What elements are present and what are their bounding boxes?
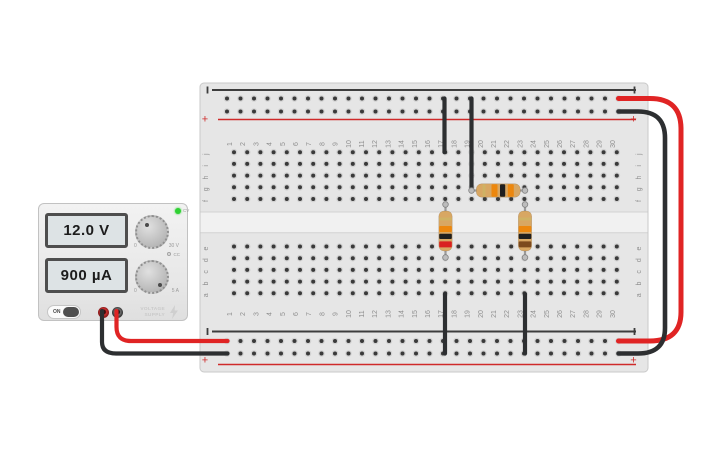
breadboard-hole[interactable] [252, 352, 256, 356]
breadboard-hole[interactable] [549, 185, 553, 189]
breadboard-hole[interactable] [364, 185, 368, 189]
breadboard-hole[interactable] [562, 150, 566, 154]
breadboard-hole[interactable] [417, 197, 421, 201]
breadboard-hole[interactable] [351, 245, 355, 249]
breadboard-hole[interactable] [496, 256, 500, 260]
breadboard-hole[interactable] [456, 245, 460, 249]
breadboard-hole[interactable] [495, 352, 499, 356]
breadboard-hole[interactable] [324, 256, 328, 260]
breadboard-hole[interactable] [404, 174, 408, 178]
breadboard-hole[interactable] [590, 110, 594, 114]
breadboard-hole[interactable] [495, 97, 499, 101]
breadboard-hole[interactable] [509, 256, 513, 260]
breadboard-hole[interactable] [470, 197, 474, 201]
breadboard-hole[interactable] [333, 352, 337, 356]
breadboard-hole[interactable] [245, 185, 249, 189]
breadboard-hole[interactable] [549, 162, 553, 166]
breadboard-hole[interactable] [311, 256, 315, 260]
breadboard-hole[interactable] [536, 197, 540, 201]
breadboard-hole[interactable] [430, 150, 434, 154]
breadboard-hole[interactable] [428, 352, 432, 356]
breadboard-hole[interactable] [298, 256, 302, 260]
breadboard-hole[interactable] [377, 150, 381, 154]
breadboard-hole[interactable] [509, 352, 513, 356]
breadboard-hole[interactable] [603, 339, 607, 343]
breadboard-hole[interactable] [387, 352, 391, 356]
breadboard-hole[interactable] [324, 185, 328, 189]
breadboard-hole[interactable] [549, 352, 553, 356]
breadboard-hole[interactable] [428, 110, 432, 114]
breadboard-hole[interactable] [536, 339, 540, 343]
breadboard-hole[interactable] [470, 245, 474, 249]
breadboard-hole[interactable] [293, 97, 297, 101]
breadboard-hole[interactable] [245, 197, 249, 201]
breadboard-hole[interactable] [401, 97, 405, 101]
breadboard-hole[interactable] [430, 185, 434, 189]
breadboard-hole[interactable] [603, 110, 607, 114]
breadboard-hole[interactable] [232, 174, 236, 178]
breadboard-hole[interactable] [468, 339, 472, 343]
breadboard-hole[interactable] [360, 339, 364, 343]
breadboard-hole[interactable] [602, 291, 606, 295]
breadboard-hole[interactable] [245, 256, 249, 260]
breadboard-hole[interactable] [351, 185, 355, 189]
breadboard-hole[interactable] [602, 256, 606, 260]
breadboard-hole[interactable] [232, 291, 236, 295]
breadboard-hole[interactable] [549, 150, 553, 154]
breadboard-hole[interactable] [430, 280, 434, 284]
breadboard-hole[interactable] [285, 245, 289, 249]
breadboard-hole[interactable] [404, 291, 408, 295]
breadboard-hole[interactable] [575, 174, 579, 178]
breadboard-hole[interactable] [456, 291, 460, 295]
breadboard-hole[interactable] [536, 291, 540, 295]
breadboard-hole[interactable] [279, 110, 283, 114]
breadboard-hole[interactable] [320, 352, 324, 356]
breadboard-hole[interactable] [258, 162, 262, 166]
breadboard-hole[interactable] [430, 197, 434, 201]
breadboard-hole[interactable] [272, 268, 276, 272]
breadboard-hole[interactable] [549, 97, 553, 101]
breadboard-hole[interactable] [272, 197, 276, 201]
breadboard-hole[interactable] [414, 339, 418, 343]
breadboard-hole[interactable] [549, 256, 553, 260]
breadboard-hole[interactable] [563, 352, 567, 356]
breadboard-hole[interactable] [258, 280, 262, 284]
breadboard-hole[interactable] [509, 339, 513, 343]
breadboard-hole[interactable] [404, 185, 408, 189]
breadboard-hole[interactable] [306, 352, 310, 356]
breadboard-hole[interactable] [509, 162, 513, 166]
breadboard-hole[interactable] [298, 162, 302, 166]
breadboard-hole[interactable] [347, 339, 351, 343]
breadboard-hole[interactable] [390, 197, 394, 201]
breadboard-hole[interactable] [430, 162, 434, 166]
breadboard-hole[interactable] [239, 110, 243, 114]
breadboard-hole[interactable] [536, 268, 540, 272]
breadboard-hole[interactable] [320, 97, 324, 101]
breadboard-hole[interactable] [482, 352, 486, 356]
breadboard-hole[interactable] [562, 245, 566, 249]
breadboard-hole[interactable] [232, 162, 236, 166]
breadboard-hole[interactable] [338, 268, 342, 272]
breadboard-hole[interactable] [470, 280, 474, 284]
breadboard-hole[interactable] [562, 197, 566, 201]
breadboard-hole[interactable] [258, 185, 262, 189]
breadboard-hole[interactable] [536, 245, 540, 249]
breadboard-hole[interactable] [360, 352, 364, 356]
breadboard-hole[interactable] [496, 162, 500, 166]
breadboard-hole[interactable] [258, 245, 262, 249]
breadboard-hole[interactable] [483, 162, 487, 166]
breadboard-hole[interactable] [338, 280, 342, 284]
breadboard-hole[interactable] [496, 150, 500, 154]
breadboard-hole[interactable] [588, 150, 592, 154]
breadboard-hole[interactable] [536, 110, 540, 114]
breadboard-hole[interactable] [455, 352, 459, 356]
breadboard-hole[interactable] [443, 280, 447, 284]
breadboard-hole[interactable] [509, 268, 513, 272]
breadboard-hole[interactable] [377, 268, 381, 272]
breadboard-hole[interactable] [588, 291, 592, 295]
breadboard-hole[interactable] [575, 291, 579, 295]
breadboard-hole[interactable] [404, 268, 408, 272]
breadboard-hole[interactable] [258, 291, 262, 295]
breadboard-hole[interactable] [232, 150, 236, 154]
breadboard-hole[interactable] [456, 150, 460, 154]
breadboard-hole[interactable] [602, 280, 606, 284]
breadboard-hole[interactable] [588, 268, 592, 272]
breadboard-hole[interactable] [298, 280, 302, 284]
breadboard-hole[interactable] [562, 174, 566, 178]
breadboard-hole[interactable] [311, 197, 315, 201]
breadboard-hole[interactable] [377, 245, 381, 249]
breadboard-hole[interactable] [615, 245, 619, 249]
breadboard-hole[interactable] [324, 245, 328, 249]
breadboard-hole[interactable] [495, 339, 499, 343]
breadboard-hole[interactable] [258, 150, 262, 154]
breadboard-hole[interactable] [404, 162, 408, 166]
breadboard-hole[interactable] [377, 162, 381, 166]
breadboard-hole[interactable] [245, 291, 249, 295]
breadboard-hole[interactable] [483, 245, 487, 249]
breadboard-hole[interactable] [338, 245, 342, 249]
breadboard-hole[interactable] [338, 256, 342, 260]
breadboard-hole[interactable] [324, 150, 328, 154]
breadboard-hole[interactable] [324, 174, 328, 178]
breadboard-hole[interactable] [602, 197, 606, 201]
breadboard-hole[interactable] [333, 97, 337, 101]
breadboard-hole[interactable] [377, 174, 381, 178]
breadboard-hole[interactable] [245, 245, 249, 249]
breadboard-hole[interactable] [430, 268, 434, 272]
breadboard-hole[interactable] [509, 291, 513, 295]
breadboard-hole[interactable] [456, 268, 460, 272]
breadboard-hole[interactable] [311, 280, 315, 284]
breadboard-hole[interactable] [338, 185, 342, 189]
breadboard-hole[interactable] [364, 268, 368, 272]
breadboard-hole[interactable] [333, 339, 337, 343]
breadboard-hole[interactable] [351, 162, 355, 166]
breadboard-hole[interactable] [351, 256, 355, 260]
breadboard-hole[interactable] [252, 97, 256, 101]
breadboard-hole[interactable] [293, 339, 297, 343]
breadboard-hole[interactable] [456, 256, 460, 260]
breadboard-hole[interactable] [258, 197, 262, 201]
breadboard-hole[interactable] [252, 110, 256, 114]
breadboard-hole[interactable] [588, 245, 592, 249]
breadboard-hole[interactable] [575, 185, 579, 189]
breadboard-hole[interactable] [390, 280, 394, 284]
breadboard-hole[interactable] [483, 291, 487, 295]
breadboard-hole[interactable] [377, 280, 381, 284]
breadboard-hole[interactable] [311, 162, 315, 166]
breadboard-hole[interactable] [602, 268, 606, 272]
breadboard-hole[interactable] [360, 110, 364, 114]
breadboard-hole[interactable] [245, 174, 249, 178]
breadboard-hole[interactable] [390, 174, 394, 178]
breadboard-hole[interactable] [602, 162, 606, 166]
breadboard-hole[interactable] [549, 339, 553, 343]
breadboard-hole[interactable] [232, 256, 236, 260]
breadboard-hole[interactable] [522, 110, 526, 114]
breadboard-hole[interactable] [239, 339, 243, 343]
breadboard-hole[interactable] [496, 174, 500, 178]
breadboard-hole[interactable] [482, 110, 486, 114]
breadboard-hole[interactable] [549, 268, 553, 272]
breadboard-hole[interactable] [239, 97, 243, 101]
breadboard-hole[interactable] [258, 174, 262, 178]
breadboard-hole[interactable] [351, 197, 355, 201]
breadboard-hole[interactable] [279, 352, 283, 356]
breadboard-hole[interactable] [602, 150, 606, 154]
breadboard-hole[interactable] [298, 245, 302, 249]
breadboard-hole[interactable] [575, 245, 579, 249]
breadboard-hole[interactable] [404, 256, 408, 260]
breadboard-hole[interactable] [404, 245, 408, 249]
breadboard-hole[interactable] [298, 185, 302, 189]
breadboard-hole[interactable] [576, 110, 580, 114]
breadboard-hole[interactable] [536, 280, 540, 284]
breadboard-hole[interactable] [588, 280, 592, 284]
breadboard-hole[interactable] [482, 97, 486, 101]
breadboard-hole[interactable] [245, 150, 249, 154]
breadboard-hole[interactable] [285, 150, 289, 154]
breadboard-hole[interactable] [536, 174, 540, 178]
breadboard-hole[interactable] [324, 291, 328, 295]
breadboard-hole[interactable] [324, 197, 328, 201]
breadboard-hole[interactable] [417, 245, 421, 249]
breadboard-hole[interactable] [536, 256, 540, 260]
breadboard-hole[interactable] [285, 197, 289, 201]
breadboard-hole[interactable] [347, 110, 351, 114]
breadboard-hole[interactable] [522, 280, 526, 284]
breadboard-hole[interactable] [549, 280, 553, 284]
breadboard-hole[interactable] [509, 245, 513, 249]
breadboard-hole[interactable] [615, 185, 619, 189]
breadboard-hole[interactable] [252, 339, 256, 343]
breadboard-hole[interactable] [351, 268, 355, 272]
breadboard-hole[interactable] [443, 185, 447, 189]
breadboard-hole[interactable] [468, 352, 472, 356]
breadboard-hole[interactable] [588, 162, 592, 166]
breadboard-hole[interactable] [364, 197, 368, 201]
breadboard-hole[interactable] [615, 162, 619, 166]
resistor-left-vertical-pin[interactable] [443, 255, 449, 261]
breadboard-hole[interactable] [272, 150, 276, 154]
breadboard-hole[interactable] [470, 268, 474, 272]
breadboard-hole[interactable] [496, 197, 500, 201]
breadboard-hole[interactable] [272, 185, 276, 189]
breadboard-hole[interactable] [285, 291, 289, 295]
breadboard-hole[interactable] [390, 256, 394, 260]
breadboard-hole[interactable] [443, 162, 447, 166]
breadboard-hole[interactable] [377, 291, 381, 295]
breadboard-hole[interactable] [575, 280, 579, 284]
breadboard-hole[interactable] [455, 97, 459, 101]
breadboard-hole[interactable] [404, 150, 408, 154]
breadboard-hole[interactable] [470, 256, 474, 260]
breadboard-hole[interactable] [298, 291, 302, 295]
breadboard-hole[interactable] [324, 162, 328, 166]
breadboard-hole[interactable] [430, 291, 434, 295]
breadboard-hole[interactable] [562, 291, 566, 295]
breadboard-hole[interactable] [590, 352, 594, 356]
breadboard-hole[interactable] [338, 291, 342, 295]
breadboard-hole[interactable] [615, 291, 619, 295]
breadboard-hole[interactable] [306, 110, 310, 114]
breadboard-hole[interactable] [562, 162, 566, 166]
breadboard-hole[interactable] [338, 197, 342, 201]
breadboard-hole[interactable] [417, 291, 421, 295]
breadboard-hole[interactable] [298, 150, 302, 154]
breadboard-hole[interactable] [522, 162, 526, 166]
breadboard-hole[interactable] [417, 268, 421, 272]
breadboard-hole[interactable] [522, 150, 526, 154]
breadboard-hole[interactable] [562, 268, 566, 272]
breadboard-hole[interactable] [588, 197, 592, 201]
breadboard-hole[interactable] [430, 256, 434, 260]
breadboard-hole[interactable] [562, 185, 566, 189]
breadboard-hole[interactable] [390, 268, 394, 272]
breadboard-hole[interactable] [306, 97, 310, 101]
breadboard-hole[interactable] [324, 268, 328, 272]
breadboard-hole[interactable] [374, 339, 378, 343]
breadboard-hole[interactable] [417, 150, 421, 154]
breadboard-hole[interactable] [483, 280, 487, 284]
breadboard-hole[interactable] [443, 197, 447, 201]
breadboard-hole[interactable] [390, 185, 394, 189]
breadboard-hole[interactable] [374, 352, 378, 356]
breadboard-hole[interactable] [443, 268, 447, 272]
breadboard-hole[interactable] [522, 268, 526, 272]
breadboard-hole[interactable] [496, 291, 500, 295]
breadboard-hole[interactable] [232, 185, 236, 189]
breadboard-hole[interactable] [266, 352, 270, 356]
breadboard-hole[interactable] [615, 280, 619, 284]
breadboard-hole[interactable] [563, 110, 567, 114]
breadboard-hole[interactable] [390, 162, 394, 166]
breadboard-hole[interactable] [417, 256, 421, 260]
breadboard-hole[interactable] [272, 174, 276, 178]
breadboard-hole[interactable] [615, 174, 619, 178]
breadboard-hole[interactable] [414, 352, 418, 356]
breadboard-hole[interactable] [387, 339, 391, 343]
breadboard-hole[interactable] [603, 352, 607, 356]
breadboard-hole[interactable] [428, 97, 432, 101]
breadboard-hole[interactable] [293, 110, 297, 114]
breadboard-hole[interactable] [364, 162, 368, 166]
breadboard-hole[interactable] [430, 245, 434, 249]
breadboard-hole[interactable] [549, 110, 553, 114]
breadboard-hole[interactable] [272, 162, 276, 166]
breadboard-hole[interactable] [285, 174, 289, 178]
breadboard-hole[interactable] [272, 256, 276, 260]
breadboard-hole[interactable] [575, 268, 579, 272]
breadboard-hole[interactable] [562, 280, 566, 284]
breadboard-hole[interactable] [390, 150, 394, 154]
breadboard-hole[interactable] [387, 110, 391, 114]
breadboard-hole[interactable] [509, 97, 513, 101]
breadboard-hole[interactable] [232, 197, 236, 201]
breadboard-hole[interactable] [232, 280, 236, 284]
breadboard-hole[interactable] [549, 245, 553, 249]
breadboard-hole[interactable] [338, 162, 342, 166]
breadboard-hole[interactable] [279, 339, 283, 343]
breadboard-hole[interactable] [456, 174, 460, 178]
breadboard-hole[interactable] [536, 97, 540, 101]
breadboard-hole[interactable] [615, 268, 619, 272]
breadboard-hole[interactable] [404, 197, 408, 201]
breadboard-hole[interactable] [387, 97, 391, 101]
breadboard-hole[interactable] [311, 174, 315, 178]
breadboard-hole[interactable] [272, 245, 276, 249]
breadboard-hole[interactable] [588, 185, 592, 189]
breadboard-hole[interactable] [311, 150, 315, 154]
breadboard-hole[interactable] [377, 197, 381, 201]
breadboard-hole[interactable] [483, 174, 487, 178]
resistor-horizontal-pin[interactable] [522, 188, 528, 194]
breadboard-hole[interactable] [456, 280, 460, 284]
resistor-right-vertical-pin[interactable] [522, 202, 528, 208]
breadboard-hole[interactable] [239, 352, 243, 356]
breadboard-hole[interactable] [266, 339, 270, 343]
breadboard-hole[interactable] [575, 197, 579, 201]
breadboard-hole[interactable] [364, 245, 368, 249]
breadboard-hole[interactable] [509, 197, 513, 201]
breadboard-hole[interactable] [496, 280, 500, 284]
breadboard-hole[interactable] [575, 162, 579, 166]
breadboard-hole[interactable] [602, 174, 606, 178]
breadboard-hole[interactable] [417, 174, 421, 178]
breadboard-hole[interactable] [390, 291, 394, 295]
breadboard-hole[interactable] [225, 97, 229, 101]
breadboard-hole[interactable] [615, 256, 619, 260]
breadboard-hole[interactable] [483, 256, 487, 260]
resistor-right-vertical-pin[interactable] [522, 255, 528, 261]
breadboard-hole[interactable] [615, 150, 619, 154]
breadboard-hole[interactable] [522, 174, 526, 178]
breadboard-hole[interactable] [588, 256, 592, 260]
breadboard-hole[interactable] [509, 174, 513, 178]
breadboard-hole[interactable] [428, 339, 432, 343]
breadboard-hole[interactable] [324, 280, 328, 284]
breadboard-hole[interactable] [245, 280, 249, 284]
breadboard-hole[interactable] [509, 150, 513, 154]
breadboard-hole[interactable] [536, 185, 540, 189]
breadboard-hole[interactable] [377, 185, 381, 189]
breadboard-hole[interactable] [293, 352, 297, 356]
